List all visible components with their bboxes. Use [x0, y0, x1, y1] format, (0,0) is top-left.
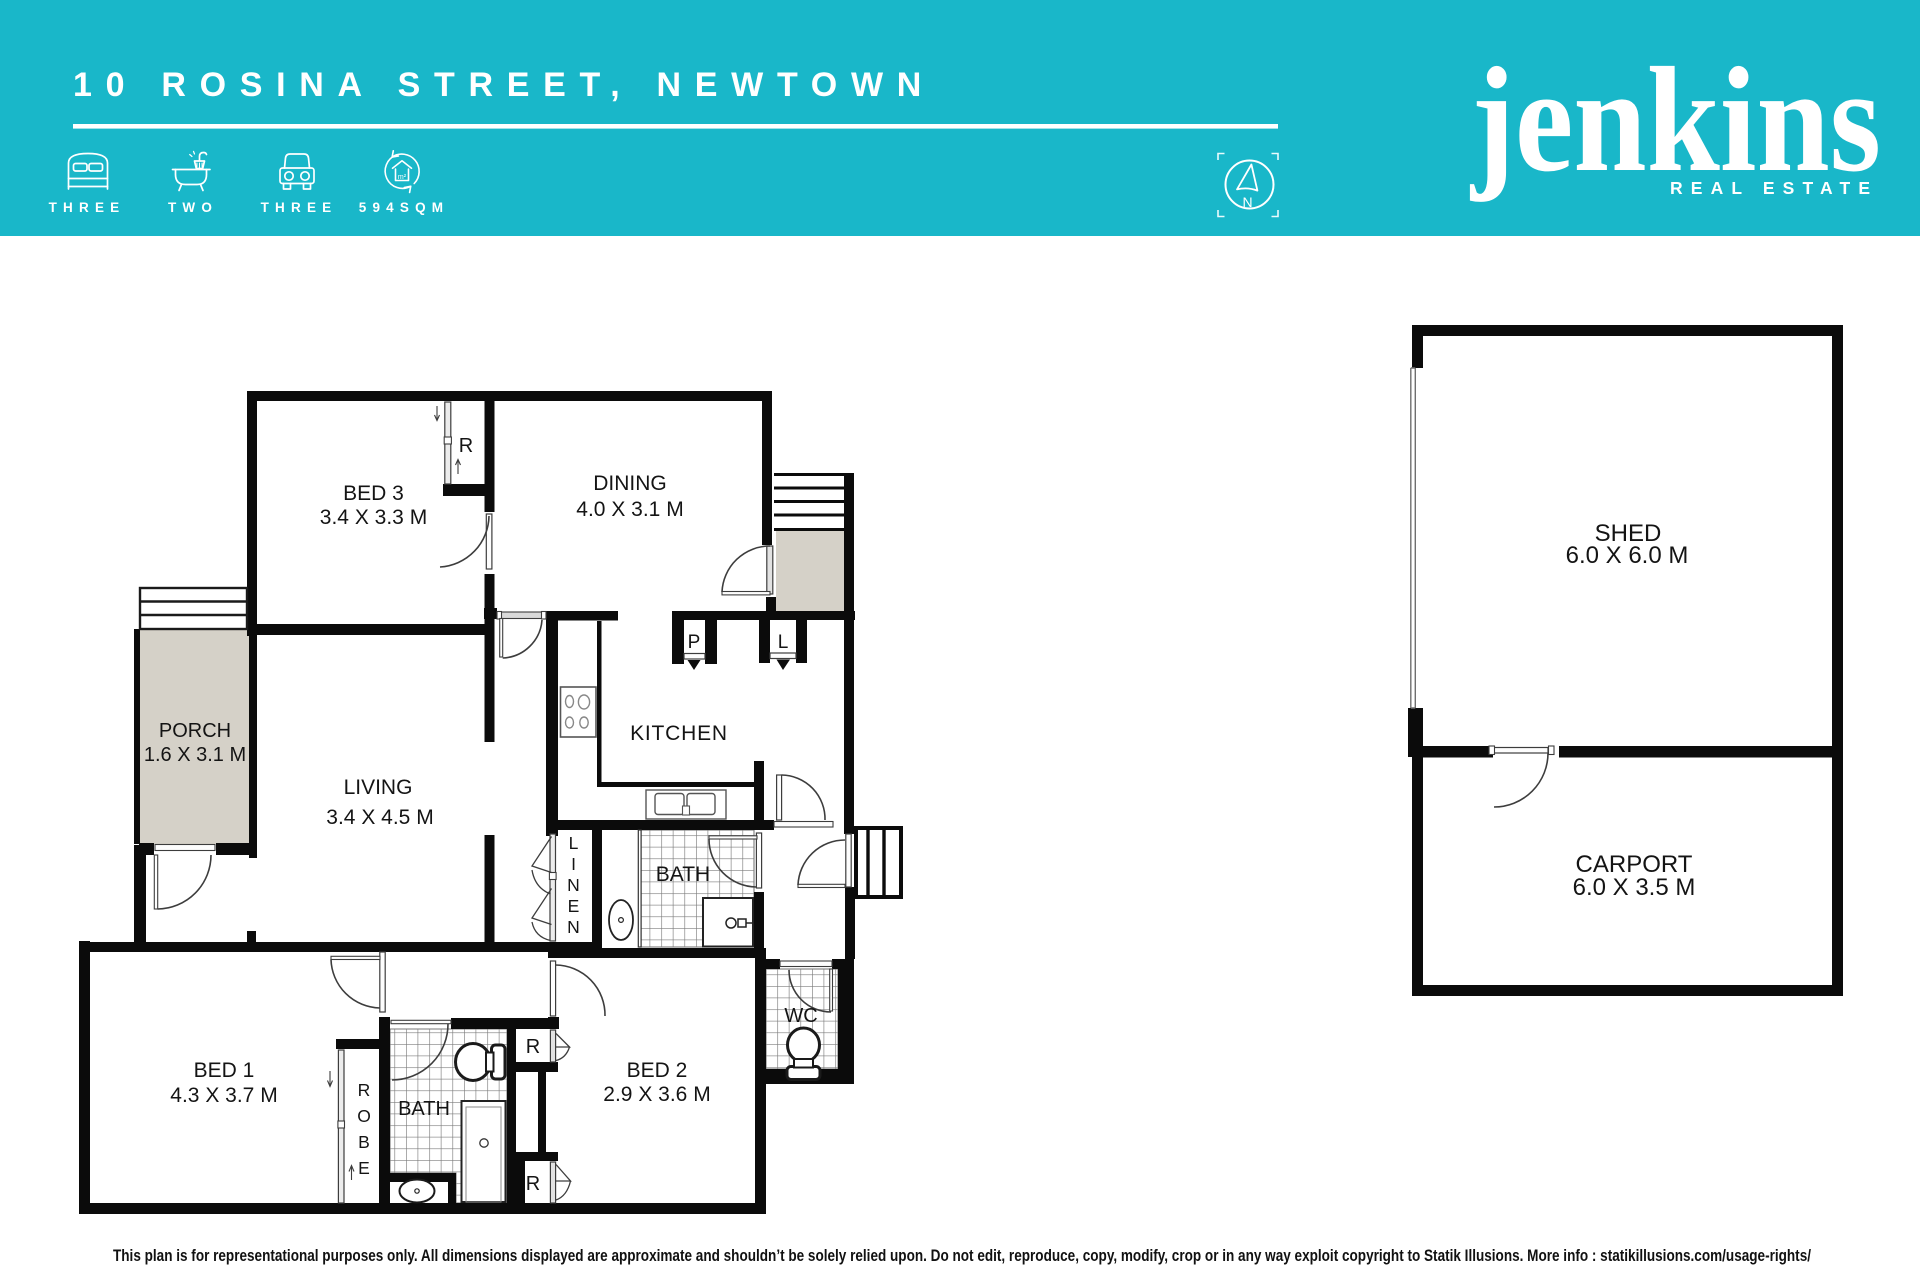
svg-text:594SQM: 594SQM — [359, 200, 449, 215]
svg-text:BATH: BATH — [398, 1098, 450, 1120]
svg-text:P: P — [688, 632, 701, 653]
svg-text:BED 2: BED 2 — [627, 1059, 688, 1082]
svg-text:6.0 X 6.0 M: 6.0 X 6.0 M — [1566, 542, 1689, 569]
svg-text:O: O — [357, 1106, 371, 1126]
svg-text:2.9 X 3.6 M: 2.9 X 3.6 M — [603, 1083, 710, 1106]
svg-text:PORCH: PORCH — [159, 720, 231, 742]
svg-text:3.4 X 4.5 M: 3.4 X 4.5 M — [326, 806, 433, 829]
svg-text:TWO: TWO — [168, 200, 218, 215]
svg-text:L: L — [778, 632, 789, 653]
svg-text:E: E — [358, 1158, 370, 1178]
svg-text:LIVING: LIVING — [344, 776, 413, 799]
svg-text:WC: WC — [784, 1005, 817, 1027]
svg-text:4.3 X 3.7 M: 4.3 X 3.7 M — [170, 1084, 277, 1107]
svg-text:DINING: DINING — [593, 472, 667, 495]
svg-text:3.4 X 3.3 M: 3.4 X 3.3 M — [320, 506, 427, 529]
svg-text:R: R — [358, 1080, 371, 1100]
svg-text:R: R — [526, 1173, 540, 1195]
svg-text:B: B — [358, 1132, 370, 1152]
svg-text:BATH: BATH — [656, 863, 710, 886]
svg-text:BED 1: BED 1 — [194, 1059, 255, 1082]
svg-text:This plan is for representatio: This plan is for representational purpos… — [113, 1246, 1811, 1265]
svg-text:I: I — [571, 854, 576, 874]
svg-text:m²: m² — [398, 174, 407, 181]
svg-text:THREE: THREE — [261, 200, 338, 215]
svg-text:N: N — [1242, 194, 1252, 210]
svg-text:N: N — [567, 875, 580, 895]
svg-text:THREE: THREE — [49, 200, 126, 215]
svg-text:E: E — [568, 896, 580, 916]
svg-text:10 ROSINA STREET, NEWTOWN: 10 ROSINA STREET, NEWTOWN — [73, 66, 935, 104]
svg-text:6.0 X 3.5 M: 6.0 X 3.5 M — [1573, 874, 1696, 901]
svg-text:BED 3: BED 3 — [343, 482, 404, 505]
svg-text:R: R — [459, 435, 473, 457]
svg-text:1.6 X 3.1 M: 1.6 X 3.1 M — [144, 744, 246, 766]
svg-text:KITCHEN: KITCHEN — [630, 722, 728, 745]
svg-text:4.0 X 3.1 M: 4.0 X 3.1 M — [576, 498, 683, 521]
svg-text:L: L — [569, 833, 579, 853]
svg-text:R: R — [526, 1036, 540, 1058]
svg-text:N: N — [567, 917, 580, 937]
svg-text:REAL ESTATE: REAL ESTATE — [1670, 178, 1878, 198]
